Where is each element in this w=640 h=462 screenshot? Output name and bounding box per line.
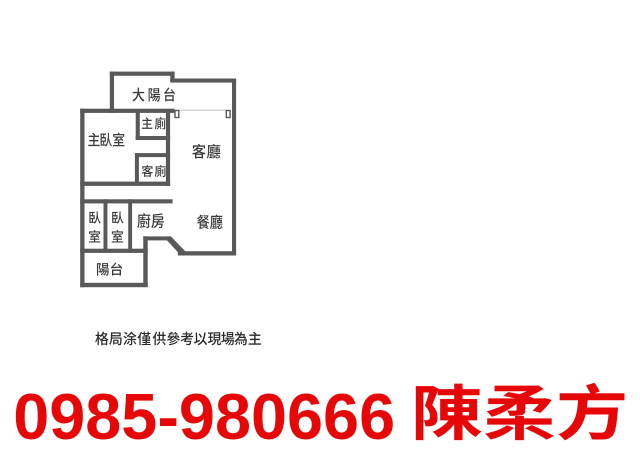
svg-text:0985-980666: 0985-980666 [13,380,395,453]
